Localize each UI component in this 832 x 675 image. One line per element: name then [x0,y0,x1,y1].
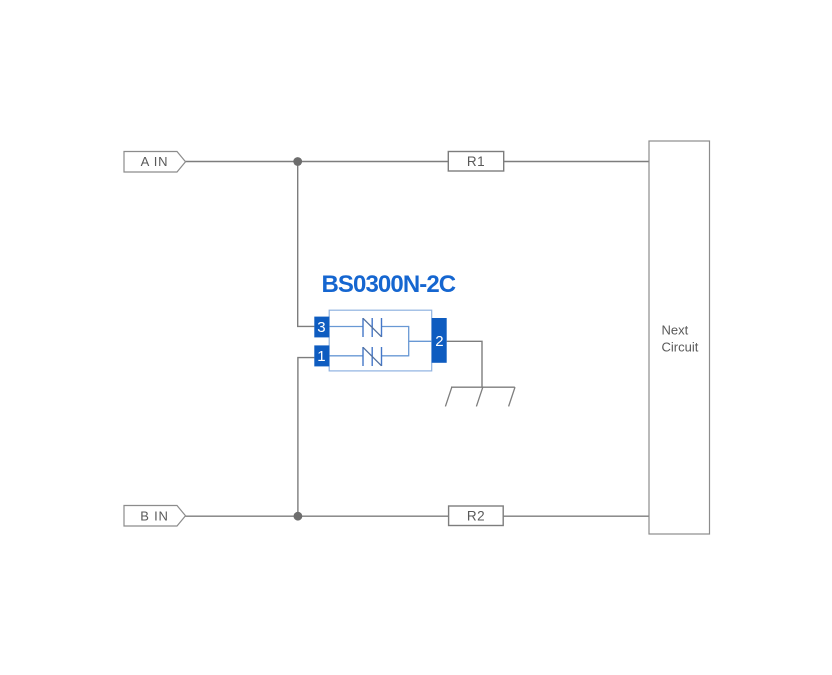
svg-text:A IN: A IN [141,154,169,169]
svg-text:Circuit: Circuit [662,340,699,355]
svg-text:1: 1 [317,348,325,365]
svg-text:Next: Next [662,323,689,338]
svg-text:3: 3 [317,319,325,336]
svg-text:R2: R2 [467,509,485,524]
svg-text:R1: R1 [467,154,485,169]
svg-text:2: 2 [435,333,443,350]
svg-text:BS0300N-2C: BS0300N-2C [322,271,456,298]
svg-text:B IN: B IN [140,509,168,524]
